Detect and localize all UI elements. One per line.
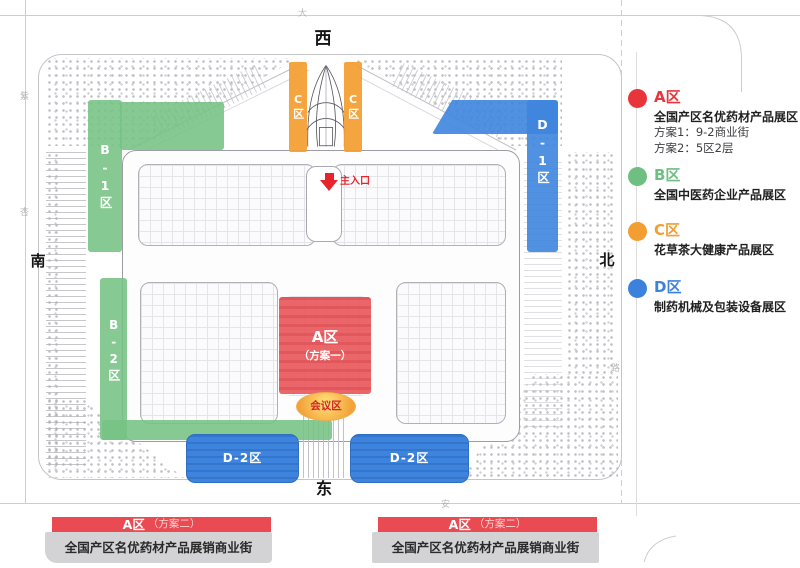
zone-a: A区 （方案一） (279, 297, 371, 394)
street-label-top: 大 (298, 9, 307, 20)
legend-item-c: C区 花草茶大健康产品展区 (628, 221, 774, 257)
legend-desc-a: 全国产区名优药材产品展区 (654, 110, 798, 124)
banner-left-header: A区 （方案二） (52, 517, 271, 532)
zone-c-right: C区 (344, 62, 362, 152)
legend-plan1-a: 方案1：9-2商业街 (654, 126, 798, 140)
legend-title-b: B区 (654, 166, 786, 184)
legend-desc-c: 花草茶大健康产品展区 (654, 243, 774, 257)
direction-north: 北 (593, 251, 621, 269)
direction-east: 东 (302, 479, 346, 498)
street-label-left-upper: 紫 (20, 92, 29, 103)
legend-title-d: D区 (654, 278, 786, 296)
lotus-tower-icon (302, 56, 350, 156)
zone-b1-arm (120, 102, 224, 150)
legend-dot-a (628, 89, 647, 108)
building-bottom-left (140, 282, 278, 424)
entrance-label: 主入口 (340, 176, 370, 188)
zone-b1-label: B-1区 (88, 112, 122, 242)
legend-desc-b: 全国中医药企业产品展区 (654, 188, 786, 202)
legend-desc-d: 制药机械及包装设备展区 (654, 300, 786, 314)
building-bottom-right (396, 282, 506, 424)
legend-title-c: C区 (654, 221, 774, 239)
legend-title-a: A区 (654, 88, 798, 106)
legend-item-a: A区 全国产区名优药材产品展区 方案1：9-2商业街 方案2：5区2层 (628, 88, 798, 156)
legend-dot-c (628, 222, 647, 241)
banner-left-body: 全国产区名优药材产品展销商业街 (45, 532, 272, 563)
zone-b2-label: B-2区 (100, 288, 127, 413)
zone-c-left: C区 (289, 62, 307, 152)
legend-dot-d (628, 279, 647, 298)
direction-south: 南 (24, 252, 52, 270)
zone-d2-right: D-2区 (350, 434, 469, 483)
site-plan-page: B-1区 B-2区 C区 C区 D-1区 D-2区 D-2区 A区 （方案一） … (0, 0, 800, 568)
conference-area-badge: 会议区 (296, 392, 356, 421)
street-label-bottom: 安 (441, 500, 450, 511)
zone-d2-left: D-2区 (186, 434, 299, 483)
banner-right-body: 全国产区名优药材产品展销商业街 (372, 532, 599, 563)
direction-west: 西 (301, 29, 345, 49)
street-label-left-lower: 杏 (20, 208, 29, 219)
entrance-arrow-icon (320, 173, 338, 191)
street-label-right: 路 (611, 364, 620, 375)
legend-dot-b (628, 167, 647, 186)
legend-item-d: D区 制药机械及包装设备展区 (628, 278, 786, 314)
legend-item-b: B区 全国中医药企业产品展区 (628, 166, 786, 202)
banner-right-header: A区 （方案二） (378, 517, 597, 532)
building-top-left (138, 164, 316, 246)
legend-plan2-a: 方案2：5区2层 (654, 142, 798, 156)
zone-d1-label: D-1区 (527, 106, 558, 198)
